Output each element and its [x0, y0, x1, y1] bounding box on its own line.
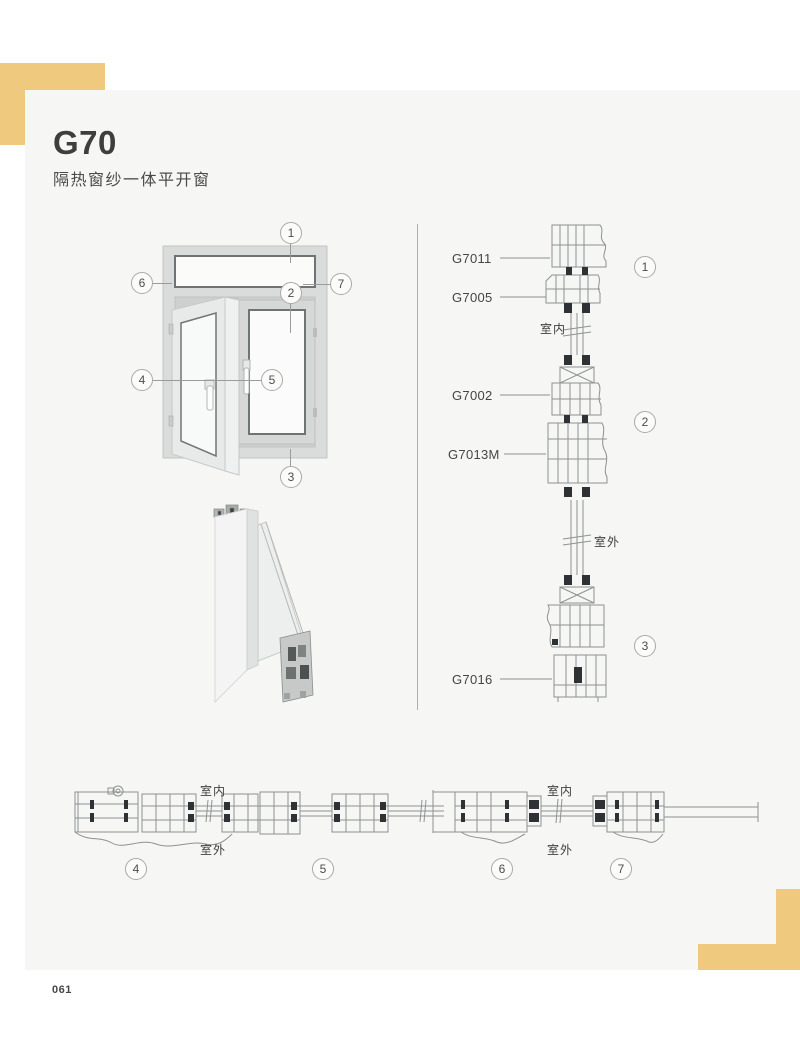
indoor-label: 室内 [547, 782, 573, 799]
page-title: G70 [53, 124, 117, 162]
open-sash [169, 297, 239, 475]
callout-7: 7 [330, 273, 352, 295]
leader-line [153, 283, 172, 284]
thermal-breaks [90, 800, 386, 822]
section-callout-5: 5 [312, 858, 334, 880]
section-callout-3: 3 [634, 635, 656, 657]
callout-1: 1 [280, 222, 302, 244]
part-label-g7011: G7011 [452, 251, 492, 266]
callout-3: 3 [280, 466, 302, 488]
leader-line [290, 244, 291, 263]
callout-4: 4 [131, 369, 153, 391]
indoor-label: 室内 [540, 320, 566, 337]
outdoor-label: 室外 [594, 533, 620, 550]
leader-line [303, 284, 330, 285]
frame-rabbet [247, 509, 258, 670]
part-label-g7016: G7016 [452, 672, 493, 687]
part-label-g7013m: G7013M [448, 447, 500, 462]
section-callout-6: 6 [491, 858, 513, 880]
corner-profile-render [200, 495, 400, 710]
outdoor-label: 室外 [200, 841, 226, 858]
callout-5: 5 [261, 369, 283, 391]
horizontal-section-drawing-left [60, 780, 450, 860]
leader-line [290, 449, 291, 466]
part-label-g7002: G7002 [452, 388, 493, 403]
page-subtitle: 隔热窗纱一体平开窗 [53, 166, 211, 190]
callout-6: 6 [131, 272, 153, 294]
page-number: 061 [52, 984, 72, 996]
corner-accent-bottom-right-horizontal [698, 944, 800, 970]
section-callout-1: 1 [634, 256, 656, 278]
catalog-page: G70 隔热窗纱一体平开窗 061 [0, 0, 800, 1043]
window-overview-illustration [155, 240, 345, 480]
section-callout-2: 2 [634, 411, 656, 433]
section-callout-4: 4 [125, 858, 147, 880]
profile-cut-bottom [280, 631, 313, 702]
part-label-g7005: G7005 [452, 290, 493, 305]
section-callout-7: 7 [610, 858, 632, 880]
column-divider [417, 224, 418, 710]
horizontal-section-drawing-right [425, 780, 765, 860]
frame-face [215, 509, 247, 702]
callout-2: 2 [280, 282, 302, 304]
leader-line [219, 380, 261, 381]
leader-line [290, 304, 291, 333]
indoor-label: 室内 [200, 782, 226, 799]
outdoor-label: 室外 [547, 841, 573, 858]
